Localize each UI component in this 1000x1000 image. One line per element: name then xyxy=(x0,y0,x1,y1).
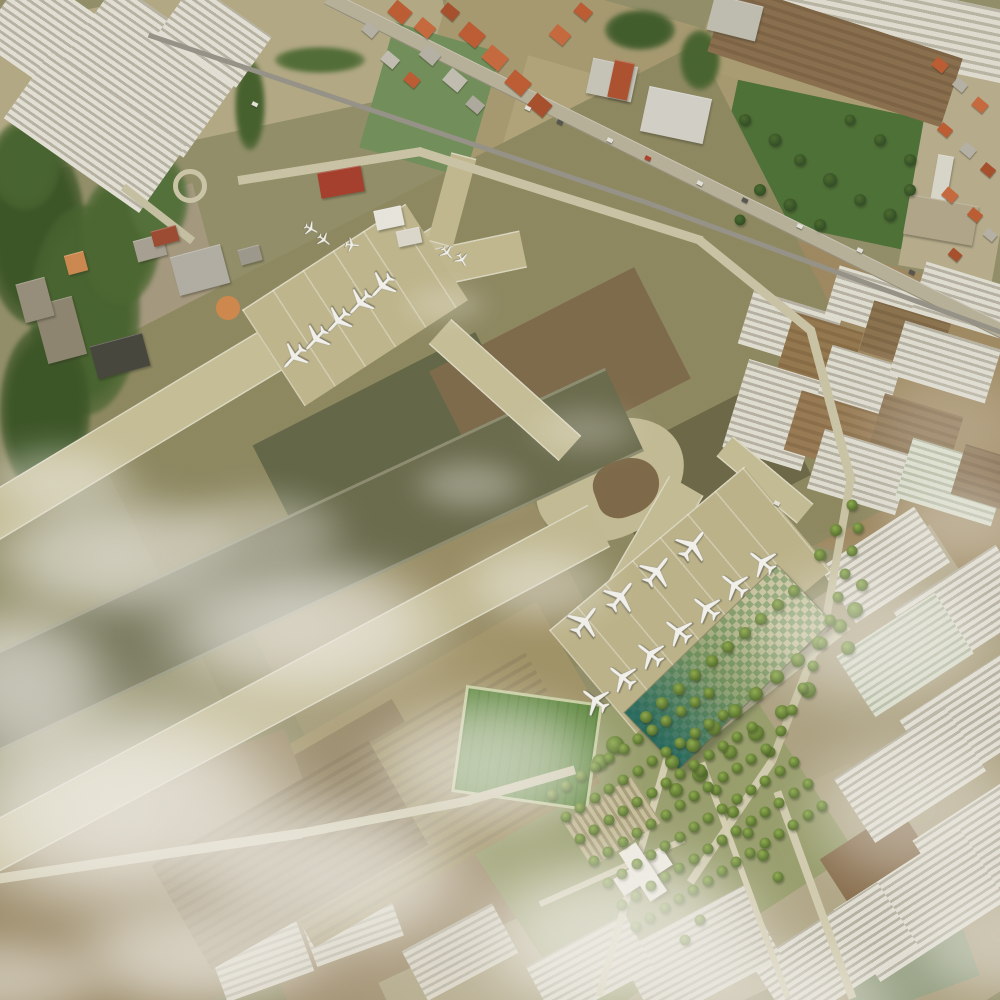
tree xyxy=(688,853,699,864)
tree xyxy=(688,822,699,833)
tree xyxy=(674,831,685,842)
tree xyxy=(675,768,686,779)
tree xyxy=(731,825,742,836)
tree xyxy=(718,709,729,720)
tree xyxy=(788,585,800,597)
tree xyxy=(561,812,572,823)
tree xyxy=(854,194,866,206)
tree xyxy=(689,669,701,681)
tree xyxy=(749,687,763,701)
tree xyxy=(814,219,826,231)
tree xyxy=(704,719,715,730)
tree xyxy=(884,209,897,222)
tree xyxy=(770,670,784,684)
tree xyxy=(776,726,787,737)
tree xyxy=(631,859,642,870)
tree xyxy=(760,807,771,818)
tree xyxy=(675,737,686,748)
helipad-circle xyxy=(216,296,240,320)
roundabout xyxy=(173,169,207,203)
tree xyxy=(659,872,670,883)
tree xyxy=(759,838,770,849)
tree xyxy=(561,780,572,791)
tree xyxy=(808,661,819,672)
tree xyxy=(688,884,699,895)
tree xyxy=(603,846,614,857)
tree xyxy=(690,697,701,708)
tree xyxy=(784,199,797,212)
tree xyxy=(656,697,668,709)
tree xyxy=(845,115,856,126)
tree xyxy=(731,856,742,867)
tree xyxy=(847,602,863,618)
tree xyxy=(575,834,586,845)
tree xyxy=(718,741,729,752)
tree xyxy=(746,785,757,796)
tree xyxy=(660,809,671,820)
tree xyxy=(659,903,670,914)
tree xyxy=(717,772,728,783)
tree xyxy=(575,771,586,782)
tree xyxy=(617,806,628,817)
woodland xyxy=(605,10,675,50)
tree xyxy=(673,683,685,695)
tree xyxy=(717,803,728,814)
tree xyxy=(739,627,751,639)
tree xyxy=(695,915,706,926)
tree xyxy=(841,641,855,655)
tree xyxy=(645,850,656,861)
tree xyxy=(847,500,858,511)
aircraft-icon xyxy=(342,235,361,254)
tree xyxy=(794,154,806,166)
tree xyxy=(645,881,656,892)
tree xyxy=(769,134,782,147)
tree xyxy=(732,763,743,774)
tree xyxy=(660,840,671,851)
parked-light-aircraft xyxy=(342,235,361,254)
tree xyxy=(632,765,643,776)
tree xyxy=(739,114,751,126)
tree xyxy=(904,184,916,196)
tree xyxy=(791,653,805,667)
tree xyxy=(774,797,785,808)
tree xyxy=(703,750,714,761)
tree xyxy=(773,872,784,883)
tree xyxy=(689,790,700,801)
tree xyxy=(617,837,628,848)
tree xyxy=(704,687,715,698)
tree xyxy=(661,746,672,757)
tree xyxy=(754,184,766,196)
tree xyxy=(702,844,713,855)
tree xyxy=(825,615,836,626)
tree xyxy=(830,524,842,536)
tree xyxy=(717,834,728,845)
tree xyxy=(774,766,785,777)
tree xyxy=(814,549,826,561)
tree xyxy=(646,756,657,767)
tree xyxy=(798,683,809,694)
tree xyxy=(603,878,614,889)
tree xyxy=(833,592,844,603)
tree xyxy=(547,790,558,801)
tree xyxy=(787,705,798,716)
tree xyxy=(745,847,756,858)
tree xyxy=(788,757,799,768)
tree xyxy=(840,569,851,580)
tree xyxy=(746,753,757,764)
tree xyxy=(647,724,658,735)
tree xyxy=(660,778,671,789)
tree xyxy=(757,849,769,861)
building xyxy=(237,244,262,265)
tree xyxy=(743,828,754,839)
tree xyxy=(802,779,813,790)
tree xyxy=(673,894,684,905)
tree xyxy=(802,810,813,821)
tree xyxy=(646,818,657,829)
tree xyxy=(674,800,685,811)
tree xyxy=(617,900,628,911)
tree xyxy=(847,546,858,557)
tree xyxy=(788,819,799,830)
tree xyxy=(874,134,886,146)
tree xyxy=(631,922,642,933)
tree xyxy=(716,866,727,877)
woodland xyxy=(275,47,365,73)
tree xyxy=(589,762,600,773)
tree xyxy=(703,812,714,823)
tree xyxy=(589,856,600,867)
tree xyxy=(603,784,614,795)
tree xyxy=(728,704,742,718)
tree xyxy=(788,788,799,799)
tree xyxy=(732,731,743,742)
tree xyxy=(731,794,742,805)
tree xyxy=(745,816,756,827)
tree xyxy=(760,775,771,786)
tree xyxy=(632,734,643,745)
tree xyxy=(774,829,785,840)
tree xyxy=(702,875,713,886)
tree xyxy=(640,711,652,723)
tree xyxy=(706,655,718,667)
tree xyxy=(675,706,686,717)
tree xyxy=(689,728,700,739)
tree xyxy=(575,802,586,813)
tree xyxy=(746,722,757,733)
tree xyxy=(680,935,691,946)
tree xyxy=(772,599,784,611)
tree xyxy=(760,744,771,755)
tree xyxy=(686,738,700,752)
tree xyxy=(631,890,642,901)
tree xyxy=(631,828,642,839)
tree xyxy=(661,715,672,726)
tree xyxy=(817,638,828,649)
aerial-photo-airport xyxy=(0,0,1000,1000)
tree xyxy=(703,781,714,792)
tree xyxy=(816,801,827,812)
tree xyxy=(674,862,685,873)
tree xyxy=(722,641,734,653)
tree xyxy=(669,783,683,797)
tree xyxy=(604,752,615,763)
tree xyxy=(618,774,629,785)
tree xyxy=(646,787,657,798)
tree xyxy=(618,743,629,754)
tree xyxy=(589,824,600,835)
tree xyxy=(755,613,767,625)
tree xyxy=(589,793,600,804)
tree xyxy=(727,806,739,818)
tree xyxy=(853,523,864,534)
tree xyxy=(617,868,628,879)
tree xyxy=(645,912,656,923)
tree xyxy=(632,796,643,807)
tree xyxy=(823,173,837,187)
tree xyxy=(856,579,868,591)
tree xyxy=(904,154,916,166)
tree xyxy=(735,215,746,226)
tree xyxy=(603,815,614,826)
tree xyxy=(689,759,700,770)
